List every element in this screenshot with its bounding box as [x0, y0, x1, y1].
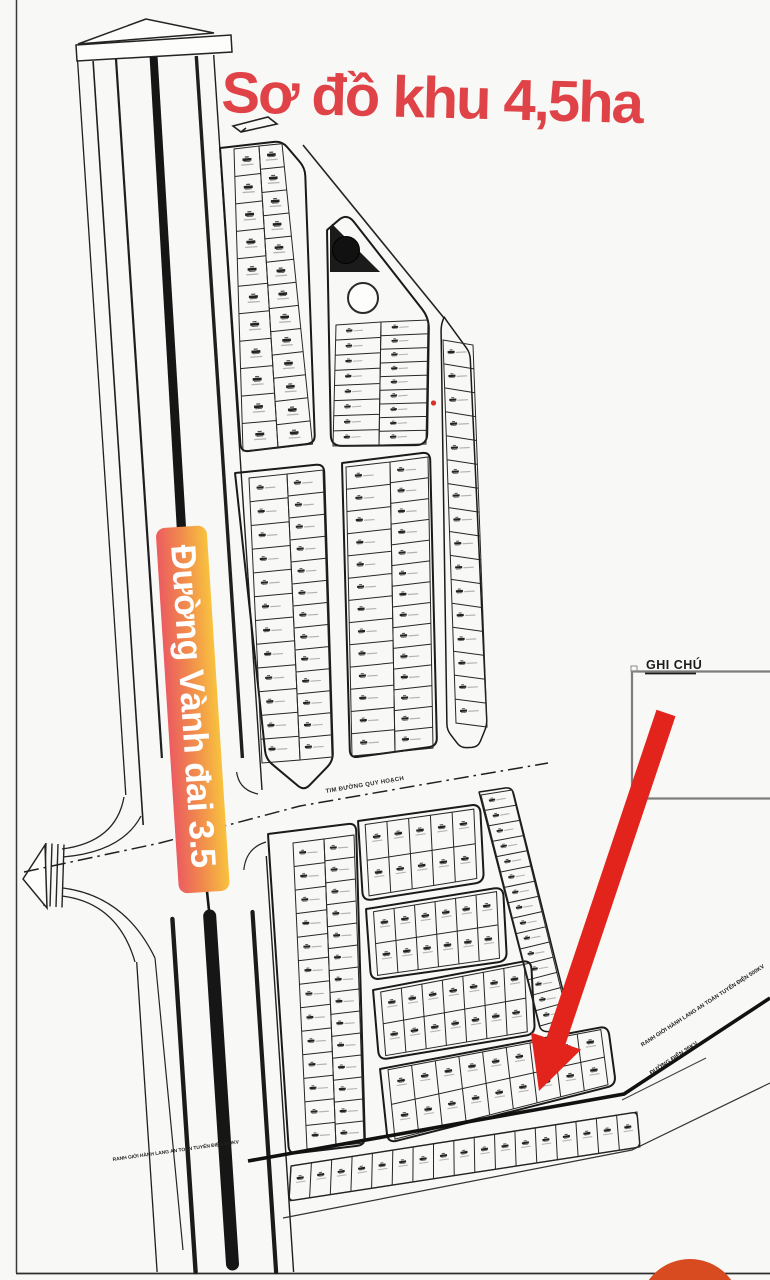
svg-text:Sơ đồ khu 4,5ha: Sơ đồ khu 4,5ha [221, 60, 646, 136]
svg-text:GHI CHÚ: GHI CHÚ [646, 657, 702, 672]
